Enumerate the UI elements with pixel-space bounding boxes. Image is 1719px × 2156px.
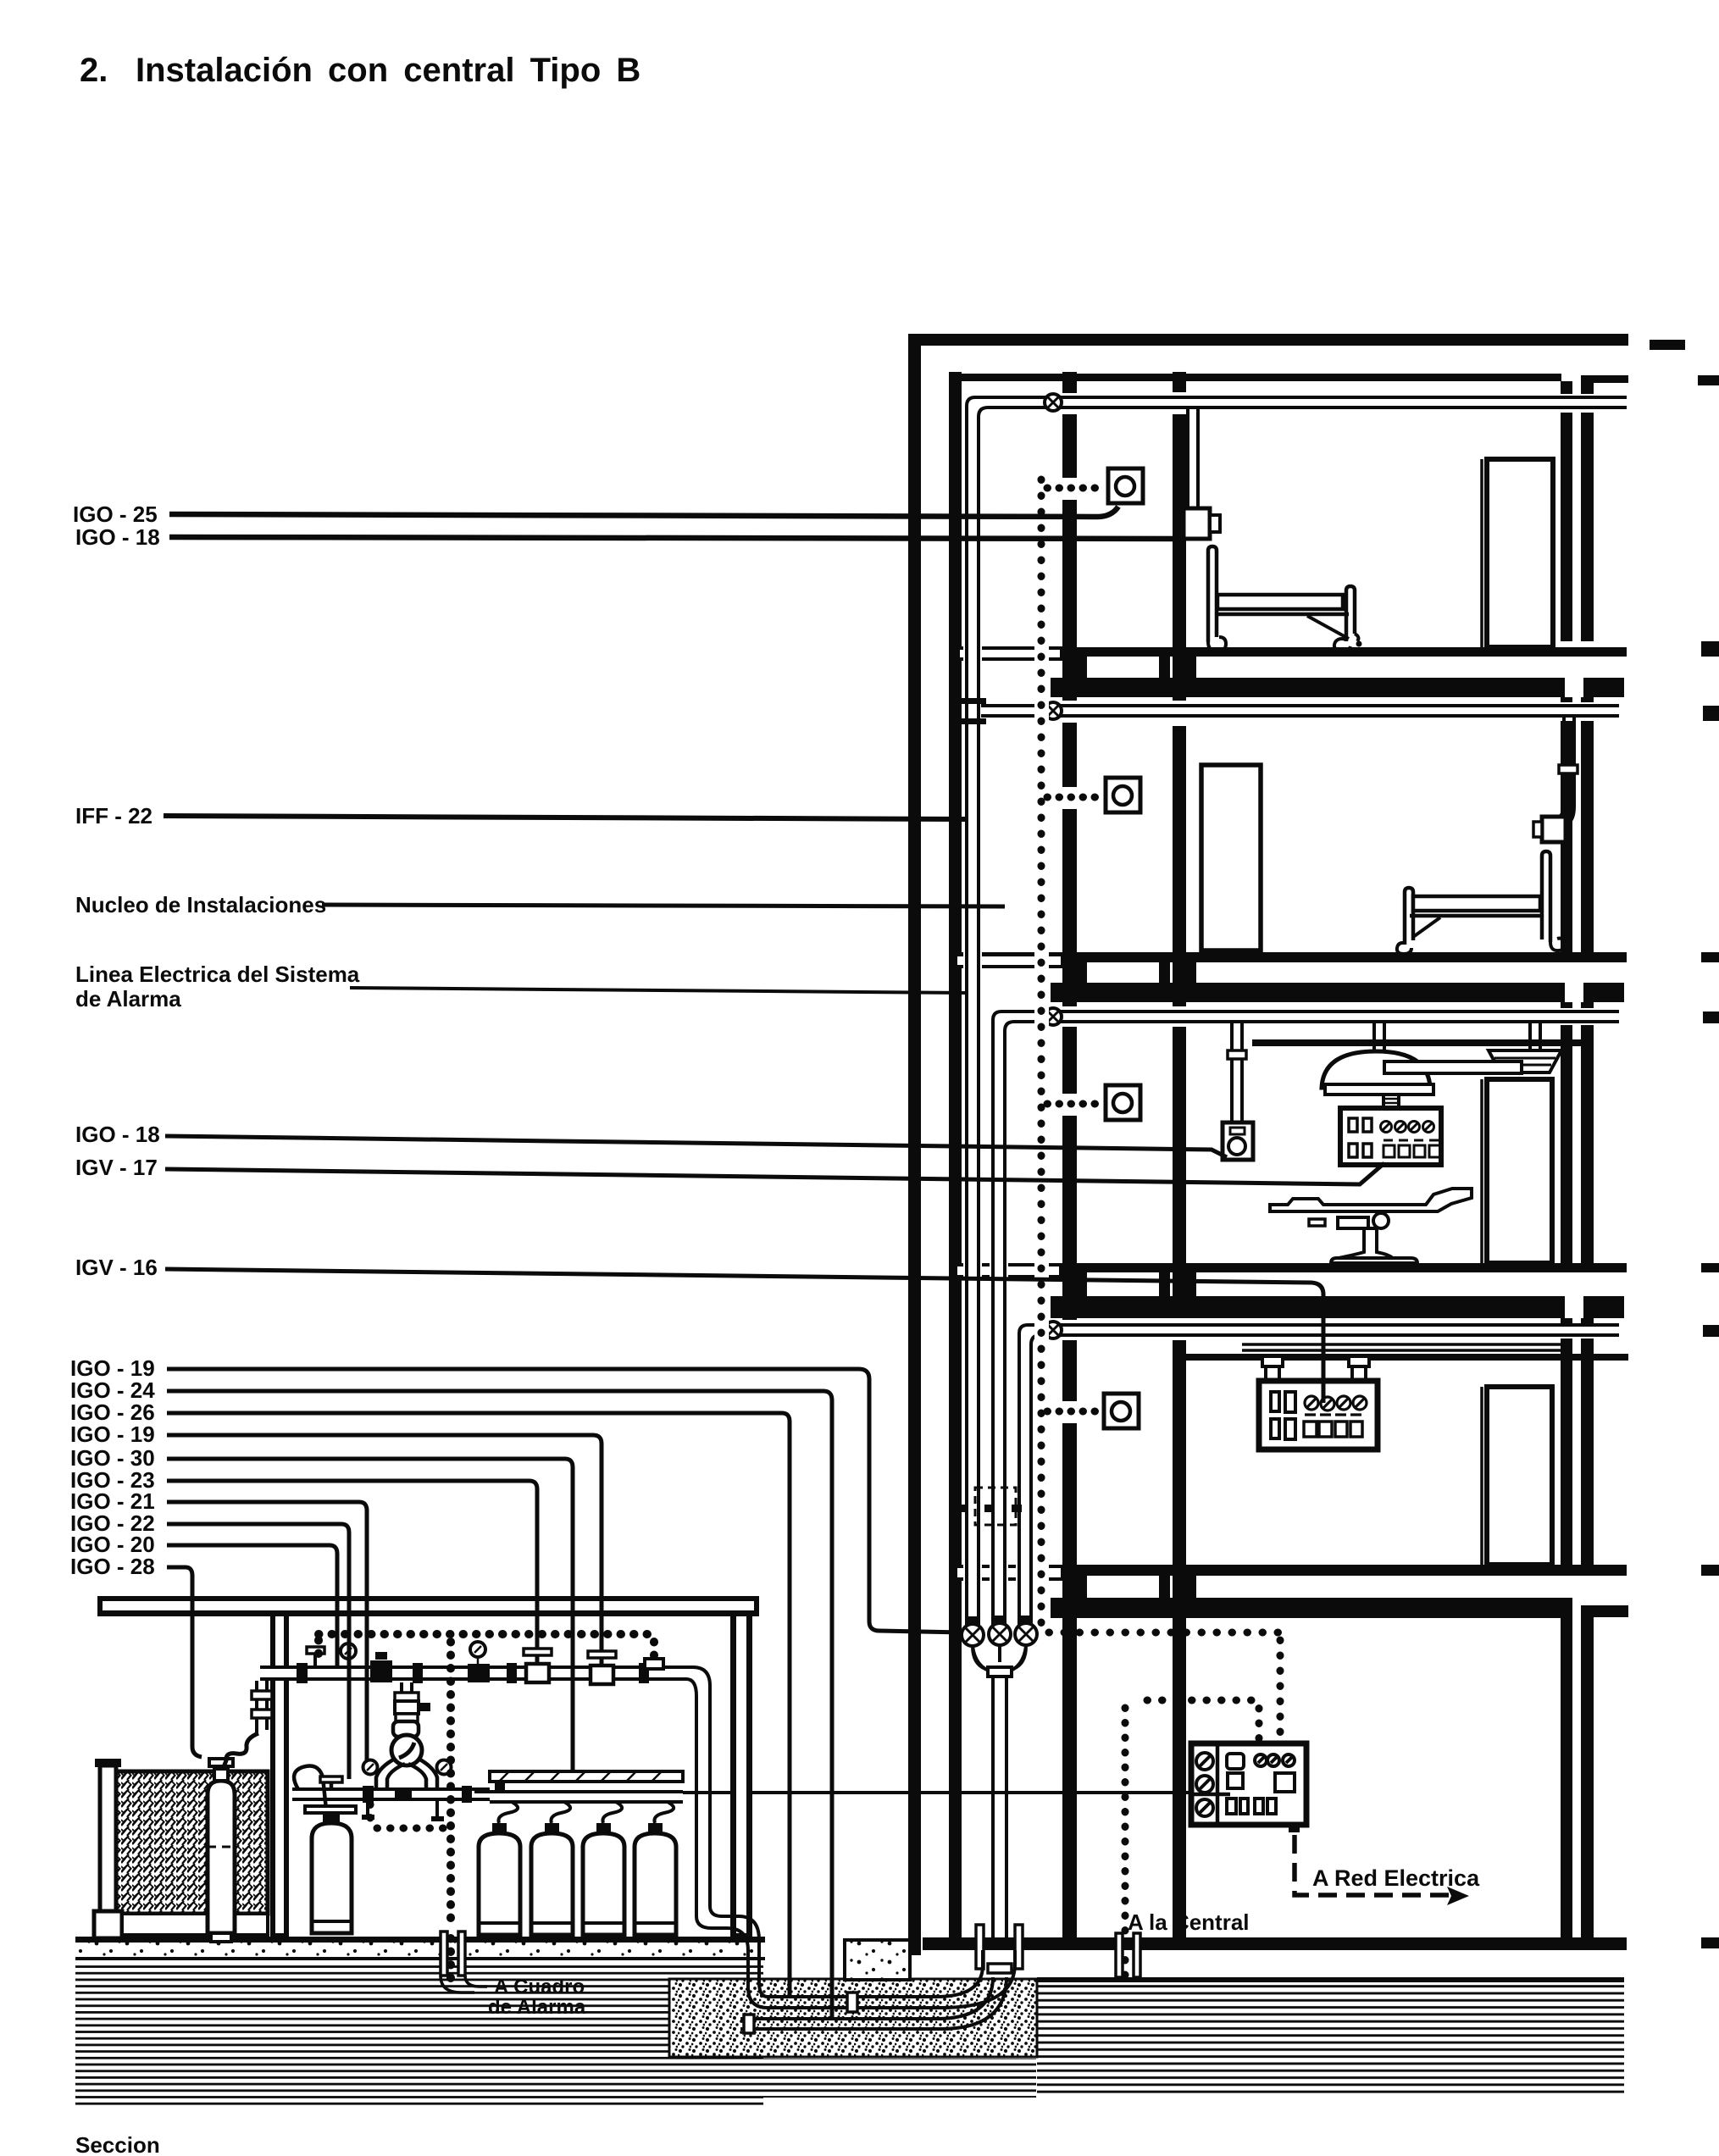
svg-text:2.: 2. [80, 52, 108, 89]
svg-text:A Cuadro: A Cuadro [494, 1976, 585, 1998]
svg-text:de Alarma: de Alarma [75, 986, 181, 1011]
svg-text:IGV - 17: IGV - 17 [75, 1155, 158, 1180]
svg-text:IGO - 25: IGO - 25 [73, 502, 158, 527]
svg-text:IFF - 22: IFF - 22 [75, 803, 152, 829]
svg-text:Linea Electrica del Sistema: Linea Electrica del Sistema [75, 962, 360, 987]
svg-text:IGO - 19: IGO - 19 [70, 1422, 155, 1447]
svg-text:A la Central: A la Central [1128, 1909, 1250, 1935]
svg-text:A Red Electrica: A Red Electrica [1312, 1865, 1480, 1891]
svg-text:IGO - 28: IGO - 28 [70, 1554, 155, 1579]
svg-text:IGV - 16: IGV - 16 [75, 1255, 158, 1280]
svg-text:Nucleo de Instalaciones: Nucleo de Instalaciones [75, 892, 326, 917]
svg-text:IGO - 18: IGO - 18 [75, 1122, 160, 1147]
svg-text:IGO - 18: IGO - 18 [75, 524, 160, 550]
svg-text:Instalación con central Tipo B: Instalación con central Tipo B [136, 52, 640, 89]
svg-text:de Alarma: de Alarma [488, 1996, 586, 2019]
svg-text:Seccion: Seccion [75, 2132, 160, 2156]
